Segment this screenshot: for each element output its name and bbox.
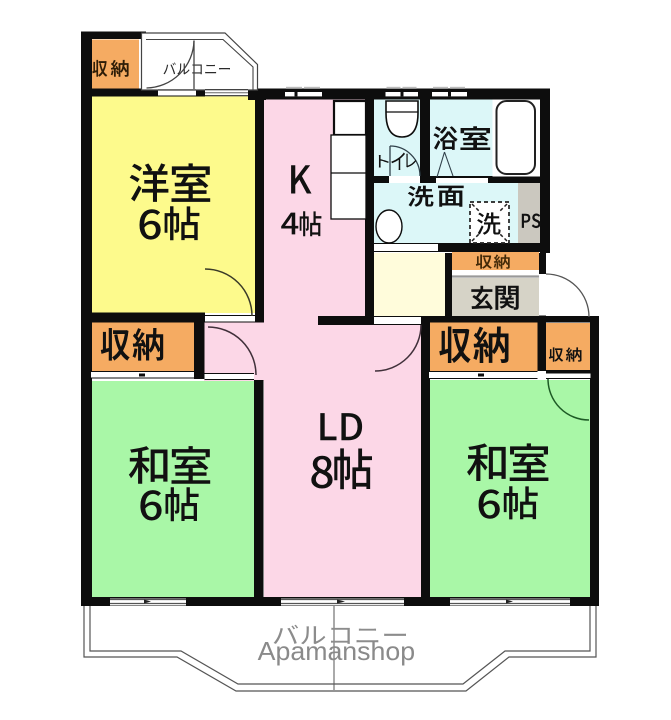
svg-text:Apamanshop: Apamanshop <box>258 636 415 666</box>
